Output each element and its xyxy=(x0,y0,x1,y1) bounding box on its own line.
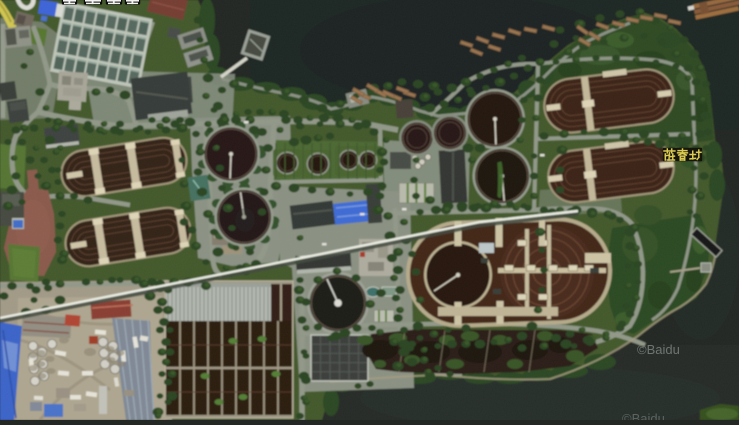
svg-text:©Baidu: ©Baidu xyxy=(622,411,665,420)
svg-text:©Baidu: ©Baidu xyxy=(637,342,680,357)
